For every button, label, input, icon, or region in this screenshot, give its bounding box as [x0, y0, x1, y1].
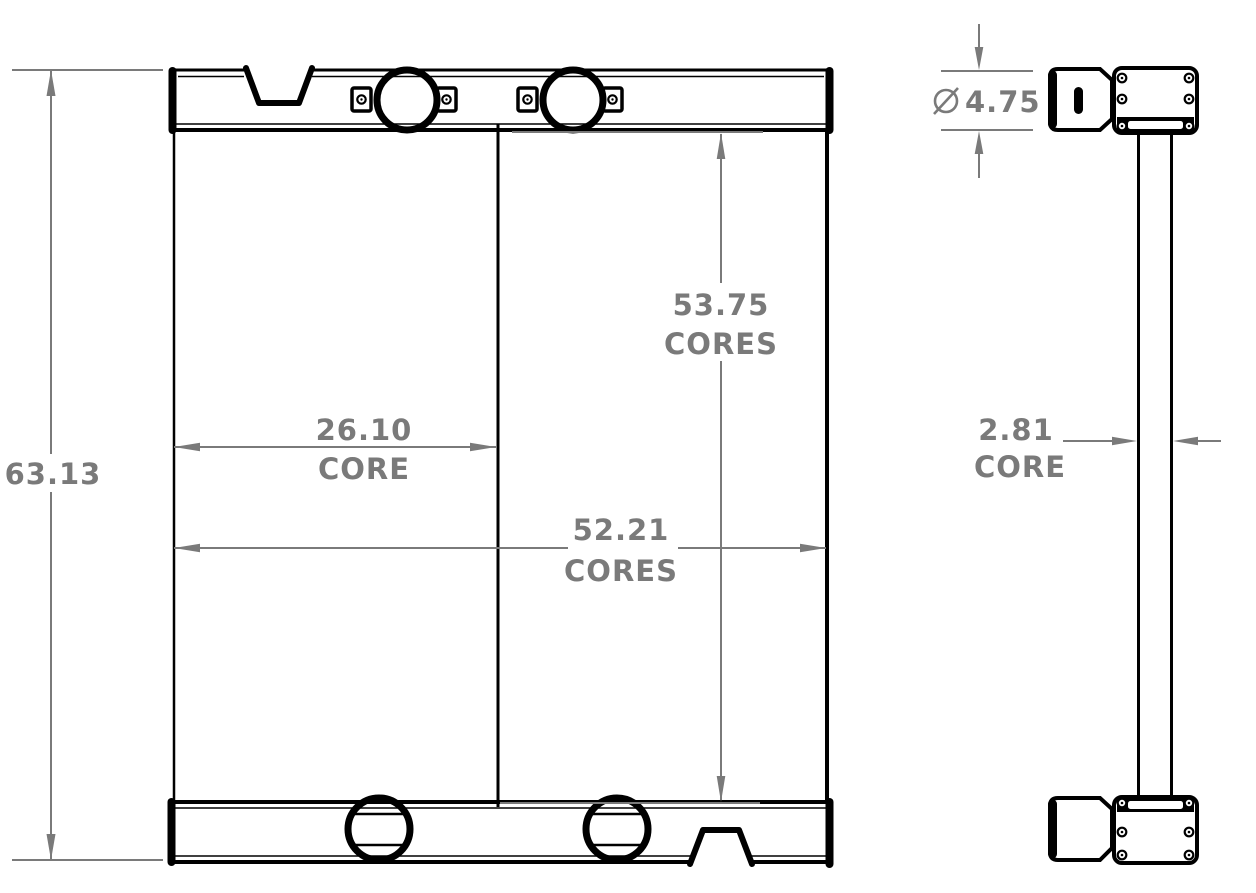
bolt-center: [1188, 802, 1191, 805]
pipe-slot: [1074, 87, 1083, 114]
bolt-center: [1121, 125, 1124, 128]
arrow-down-icon: [47, 834, 56, 860]
dim-cores-width-value: 52.21: [573, 513, 670, 547]
bolt-center: [1121, 98, 1124, 101]
dim-inlet-diameter-value: 4.75: [965, 85, 1041, 119]
side-bottom-pipe-block: [1050, 798, 1112, 860]
top-tank-port: [377, 70, 437, 130]
dim-core-width: 26.10 CORE: [174, 413, 496, 486]
radiator-technical-drawing: 63.13 26.10 CORE 52.21 CORES 53.75 CORES: [0, 0, 1256, 893]
dim-cores-height-value: 53.75: [673, 288, 770, 322]
diameter-icon: [934, 88, 958, 114]
arrow-up-icon: [717, 133, 726, 159]
dim-cores-height: 53.75 CORES: [500, 132, 778, 803]
bolt-hole-center: [611, 98, 613, 100]
dim-inlet-diameter: 4.75: [934, 24, 1041, 178]
bolt-hole-center: [526, 98, 528, 100]
core-band-slot: [1128, 801, 1183, 809]
front-core: [174, 124, 827, 807]
bolt-center: [1188, 77, 1191, 80]
diameter-icon-slash: [934, 88, 958, 114]
arrow-left-icon: [174, 443, 200, 451]
arrow-right-icon: [800, 544, 826, 552]
bottom-tank-notch: [690, 830, 752, 864]
dim-core-depth-value: 2.81: [978, 413, 1054, 447]
bolt-center: [1121, 854, 1124, 857]
side-top-tank: [1050, 68, 1197, 133]
dim-core-depth: 2.81 CORE: [974, 413, 1221, 484]
arrow-right-icon: [1112, 437, 1137, 445]
front-top-tank: [172, 68, 830, 130]
dim-cores-height-label: CORES: [664, 327, 778, 361]
side-core-column: [1139, 133, 1172, 799]
dim-core-depth-label: CORE: [974, 450, 1066, 484]
bolt-hole-center: [445, 98, 447, 100]
dim-core-width-label: CORE: [318, 452, 410, 486]
bolt-center: [1121, 831, 1124, 834]
top-tank-port: [543, 70, 603, 130]
front-view: [171, 68, 830, 864]
dim-core-width-value: 26.10: [316, 413, 413, 447]
bolt-center: [1121, 77, 1124, 80]
arrow-up-icon: [975, 131, 984, 154]
arrow-up-icon: [47, 70, 56, 96]
arrow-left-icon: [1173, 437, 1198, 445]
bolt-hole-center: [360, 98, 362, 100]
bolt-center: [1188, 125, 1191, 128]
dim-overall-height-value: 63.13: [5, 457, 102, 491]
arrow-left-icon: [174, 544, 200, 552]
side-view: [1050, 68, 1197, 863]
bolt-center: [1188, 831, 1191, 834]
core-band-slot: [1128, 121, 1183, 129]
side-bottom-tank: [1050, 797, 1197, 863]
arrow-down-icon: [717, 776, 726, 802]
dim-cores-width-label: CORES: [564, 554, 678, 588]
bolt-center: [1188, 98, 1191, 101]
front-bottom-tank: [171, 798, 830, 864]
arrow-down-icon: [975, 47, 984, 70]
arrow-right-icon: [470, 443, 496, 451]
bolt-center: [1121, 802, 1124, 805]
drawing-canvas: 63.13 26.10 CORE 52.21 CORES 53.75 CORES: [0, 0, 1256, 893]
bolt-center: [1188, 854, 1191, 857]
dim-overall-height: 63.13: [5, 70, 163, 860]
top-tank-notch: [246, 68, 312, 103]
dim-cores-width: 52.21 CORES: [174, 513, 826, 588]
